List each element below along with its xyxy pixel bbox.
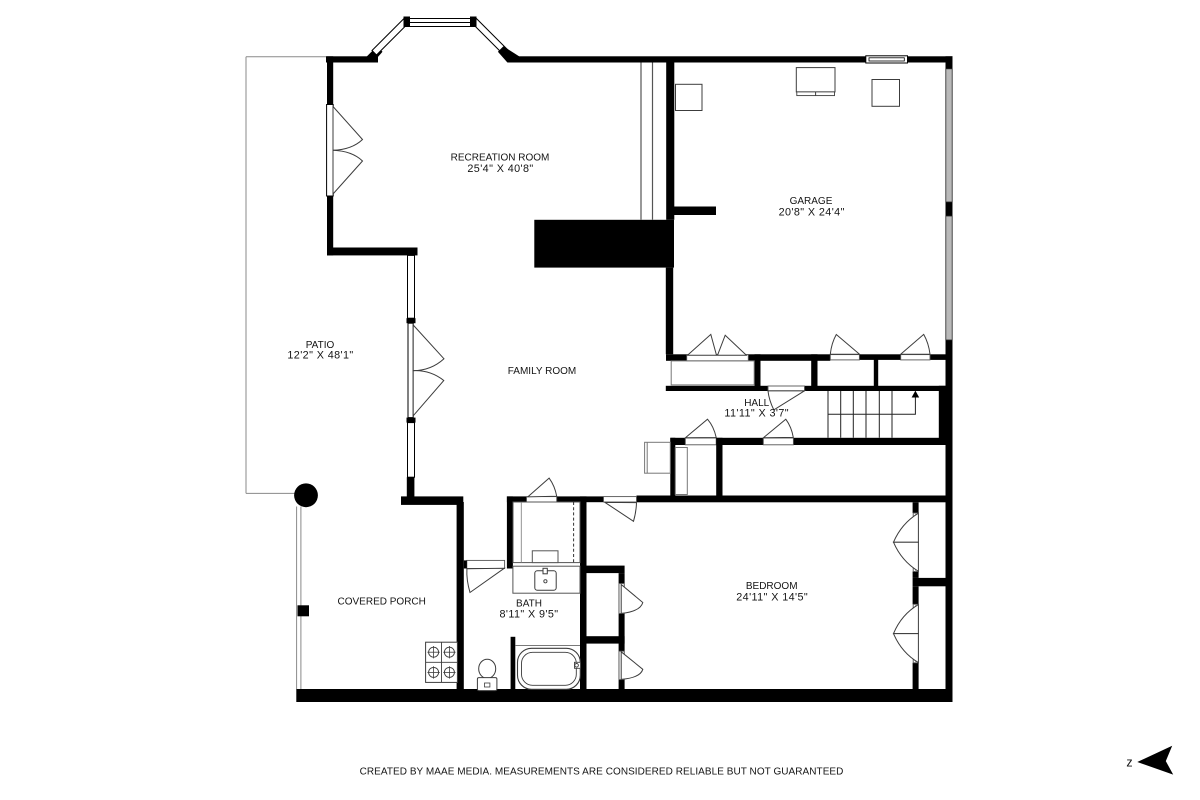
svg-text:11'11" X 3'7": 11'11" X 3'7" [724,408,789,420]
svg-text:GARAGE: GARAGE [790,196,833,207]
svg-text:CREATED BY MAAE MEDIA. MEASURE: CREATED BY MAAE MEDIA. MEASUREMENTS ARE … [360,767,844,778]
svg-text:z: z [1126,756,1132,770]
svg-text:8'11" X 9'5": 8'11" X 9'5" [499,608,558,620]
svg-text:25'4" X 40'8": 25'4" X 40'8" [467,163,533,175]
svg-text:COVERED PORCH: COVERED PORCH [338,596,426,607]
svg-text:FAMILY ROOM: FAMILY ROOM [508,366,577,377]
svg-text:RECREATION ROOM: RECREATION ROOM [451,152,550,163]
svg-text:BEDROOM: BEDROOM [746,581,798,592]
svg-text:12'2" X 48'1": 12'2" X 48'1" [287,350,353,362]
svg-text:24'11" X 14'5": 24'11" X 14'5" [736,591,808,603]
svg-text:20'8" X 24'4": 20'8" X 24'4" [779,207,845,219]
